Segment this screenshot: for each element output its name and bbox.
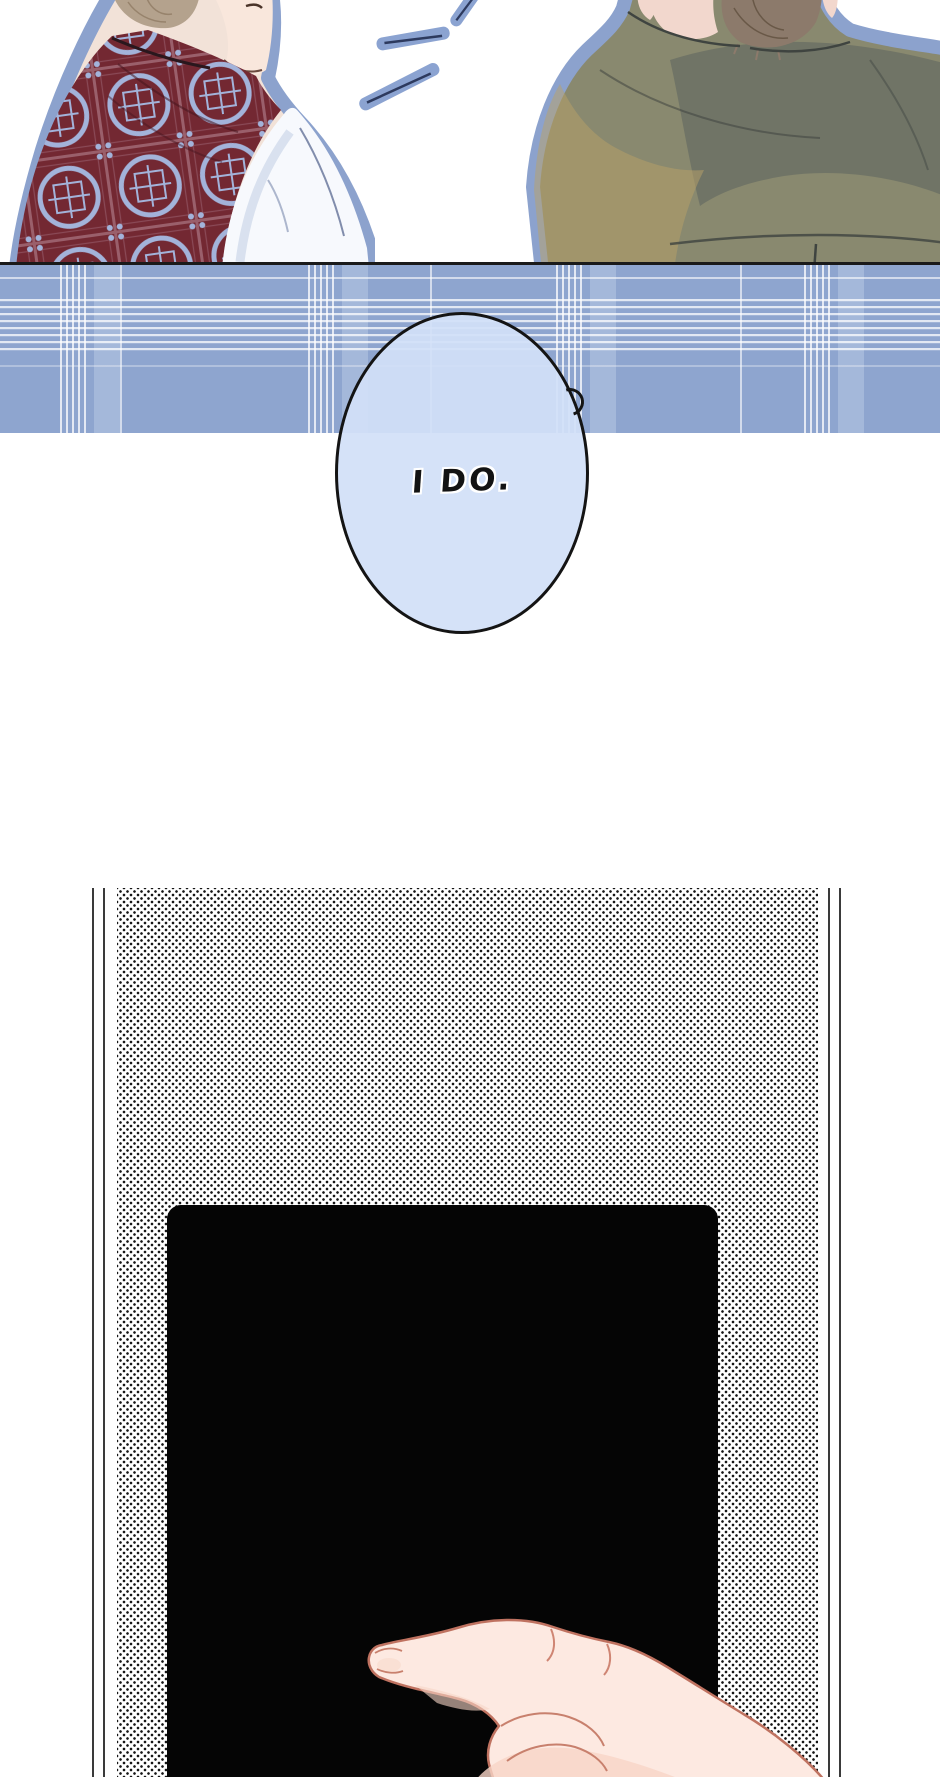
plaid-horizontal-line [0, 277, 940, 279]
emphasis-marks [348, 0, 478, 120]
comic-page: { "page": {"width": 940, "height": 1777,… [0, 0, 940, 1777]
character-right [520, 0, 940, 265]
bottom-panel [0, 888, 940, 1777]
panel-border-left-inner [103, 888, 105, 1777]
pointing-hand [355, 1585, 855, 1777]
panel-border-left-outer [92, 888, 94, 1777]
top-panel: I DO. [0, 0, 940, 430]
character-left [0, 0, 375, 265]
speech-bubble: I DO. [335, 312, 589, 634]
speech-bubble-text: I DO. [410, 461, 513, 500]
